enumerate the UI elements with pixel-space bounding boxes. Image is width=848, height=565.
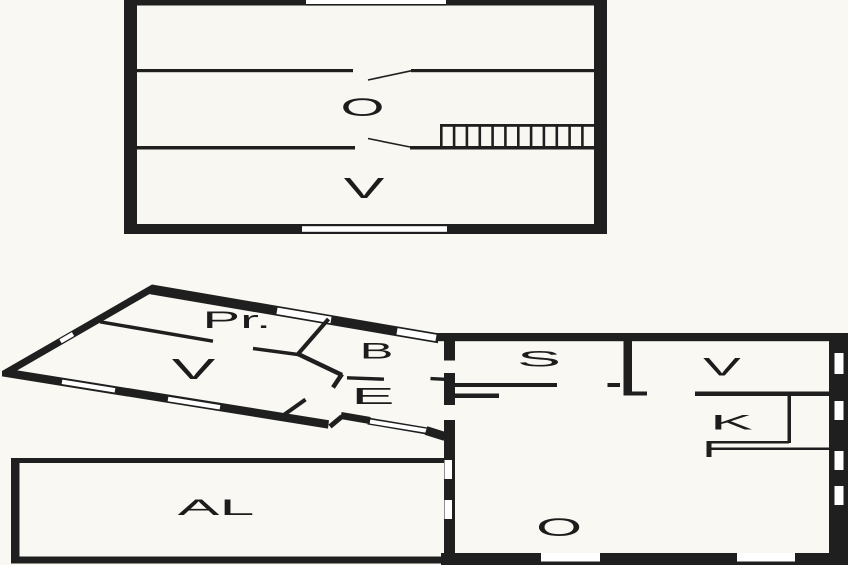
- svg-text:K: K: [710, 411, 753, 434]
- svg-text:O: O: [341, 94, 385, 122]
- svg-text:B: B: [360, 339, 394, 363]
- svg-text:Pr.: Pr.: [203, 307, 272, 334]
- svg-text:V: V: [703, 353, 741, 381]
- svg-text:AL: AL: [178, 495, 255, 520]
- svg-text:V: V: [172, 353, 216, 386]
- svg-text:O: O: [536, 513, 582, 541]
- svg-text:S: S: [517, 347, 561, 372]
- svg-text:E: E: [352, 384, 395, 410]
- svg-text:V: V: [344, 172, 385, 204]
